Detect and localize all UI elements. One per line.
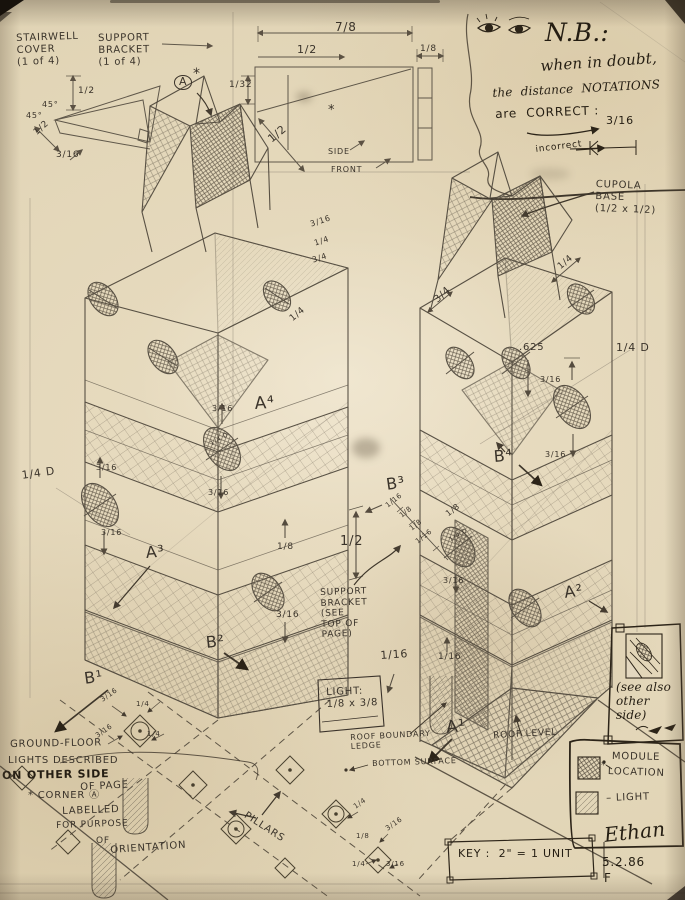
- see-also-note-line-0: (see also: [616, 680, 671, 694]
- support-bracket-note-line-1: BRACKET: [98, 44, 150, 57]
- dim-top-width: 7/8: [335, 20, 357, 34]
- corner-note-4: OF: [96, 836, 110, 847]
- dim-625: .625: [519, 342, 544, 354]
- legend-module-asterisk: *: [601, 760, 607, 772]
- stairwell-angle-2: 45°: [26, 111, 43, 120]
- light-callout-note: LIGHT:1/8 x 3/8: [326, 685, 378, 710]
- dim-pillar-r-quarter-2: 1/4: [352, 860, 366, 868]
- dim-quarter-d-in-left-ellipse: 1/4 D: [209, 431, 230, 447]
- dim-b3-116b: 1/16: [414, 527, 434, 545]
- nb-line3: are CORRECT :: [495, 103, 599, 121]
- label-b1: B¹: [83, 667, 104, 688]
- mark-asterisk-side: *: [328, 103, 335, 118]
- dim-b3-18b: 1/8: [408, 518, 424, 533]
- dim-a4-316-low: 3/16: [208, 488, 229, 497]
- dim-ellipse-316-low: 3/16: [443, 576, 464, 585]
- signature-initial: F: [604, 871, 612, 885]
- bottom-surface-note: BOTTOM SURFACE: [372, 756, 457, 768]
- support-bracket-note-line-0: SUPPORT: [98, 32, 150, 45]
- light-callout-note-line-1: 1/8 x 3/8: [326, 697, 378, 711]
- see-also-note-line-2: side): [616, 708, 671, 722]
- dim-quarter-d-left: 1/4 D: [21, 465, 56, 483]
- label-b4: B⁴: [493, 446, 514, 466]
- dim-stairwell-lip: 3/16: [56, 150, 79, 161]
- roof-level-note: ROOF LEVEL: [493, 728, 557, 742]
- dim-l-ellipse-316-low: 3/16: [101, 528, 122, 537]
- support-bracket-note: SUPPORTBRACKET(1 of 4): [98, 32, 150, 68]
- corner-a-circled: A: [174, 75, 192, 90]
- dim-116-left: 1/16: [380, 648, 409, 663]
- dim-stairwell-height: 1/2: [78, 86, 95, 97]
- scanned-pencil-drawing-page: { "colors": { "paper": "#e6dabf", "penci…: [0, 0, 685, 900]
- corner-note-1: * CORNER Ⓐ: [28, 790, 100, 802]
- dim-116-right: 1/16: [438, 652, 461, 663]
- stairwell-cover-note-line-0: STAIRWELL: [16, 31, 79, 45]
- see-also-note: (see alsootherside): [616, 680, 671, 722]
- dim-right-col-34: 3/4: [432, 285, 454, 306]
- dim-stairwell-width: 1/2: [32, 119, 52, 138]
- nb-line1: when in doubt,: [540, 50, 657, 76]
- page-edge-shadow: [110, 0, 440, 3]
- corner-a-asterisk: *: [193, 66, 201, 83]
- front-label: FRONT: [331, 165, 362, 174]
- nb-heading: N.B.:: [545, 18, 609, 48]
- nb-incorrect: incorrect: [535, 139, 583, 155]
- dim-quarter-d-margin: 1/4 D: [616, 342, 650, 355]
- dim-rt-316-lower: 3/16: [545, 450, 566, 459]
- page-corner-crease: [665, 0, 685, 24]
- page-corner-crease: [667, 886, 685, 900]
- stairwell-cover-note: STAIRWELLCOVER(1 of 4): [16, 31, 80, 69]
- dim-left-col-34: 3/4: [311, 251, 328, 265]
- label-a3: A³: [145, 542, 166, 562]
- legend-module-label-2: LOCATION: [608, 766, 665, 780]
- ground-floor-note-2: LIGHTS DESCRIBED: [8, 755, 118, 767]
- side-label: SIDE: [328, 147, 350, 156]
- signature-name: Ethan: [603, 818, 666, 848]
- support-bracket-see-note: SUPPORTBRACKET(SEETOP OFPAGE): [320, 586, 369, 641]
- legend-light-label: – LIGHT: [606, 791, 650, 804]
- dim-top-eighth: 1/8: [420, 44, 437, 55]
- see-also-note-line-1: other: [616, 694, 671, 708]
- dim-top-half: 1/2: [297, 44, 317, 57]
- dim-pillar-l-quarter-top: 1/4: [136, 700, 150, 708]
- annotation-layer: STAIRWELLCOVER(1 of 4)SUPPORTBRACKET(1 o…: [0, 0, 685, 900]
- dim-316-mid: 3/16: [276, 610, 299, 621]
- nb-line2: the distance NOTATIONS: [492, 77, 660, 100]
- dim-a4-316-up: 3/16: [212, 404, 233, 413]
- cupola-base-note-line-2: (1/2 x 1/2): [595, 203, 656, 217]
- roof-boundary-note: ROOF BOUNDARYLEDGE: [350, 729, 431, 752]
- dim-top-diag-half: 1/2: [266, 123, 290, 146]
- dim-pillar-l-316-bottom: 3/16: [94, 722, 114, 740]
- page-corner-crease: [0, 12, 12, 22]
- key-note: KEY : 2" = 1 UNIT: [458, 848, 573, 861]
- dim-left-col-316: 3/16: [309, 213, 332, 229]
- support-bracket-see-note-line-4: PAGE): [321, 629, 368, 641]
- pillars-note: PILLARS: [242, 810, 287, 845]
- dim-top-132: 1/32: [229, 80, 252, 91]
- dim-l-ellipse-316-up: 3/16: [96, 463, 117, 472]
- corner-note-2: LABELLED: [62, 804, 120, 818]
- stairwell-angle-1: 45°: [42, 100, 59, 109]
- dim-half-center: 1/2: [340, 534, 363, 549]
- stairwell-cover-note-line-2: (1 of 4): [17, 54, 80, 68]
- ground-floor-note-1: GROUND-FLOOR: [10, 737, 102, 750]
- nb-correct-value: 3/16: [606, 115, 634, 128]
- dim-18-mid: 1/8: [277, 542, 294, 553]
- label-b2: B²: [205, 632, 226, 653]
- dim-pillar-r-316-1: 3/16: [384, 815, 404, 833]
- dim-pillar-r-316-2: 3/16: [386, 860, 405, 868]
- dim-left-col-quarter: 1/4: [313, 234, 330, 248]
- corner-note-3: FOR PURPOSE: [56, 818, 129, 831]
- signature-date: 5.2.86: [602, 855, 645, 869]
- dim-left-face-quarter: 1/4: [288, 305, 308, 324]
- label-a2: A²: [563, 581, 584, 602]
- dim-pillar-r-eighth: 1/8: [356, 832, 370, 840]
- dim-cupola-quarter: 1/4: [556, 253, 576, 272]
- support-bracket-note-line-2: (1 of 4): [98, 56, 150, 69]
- dim-pillar-l-316-top: 3/16: [99, 686, 119, 704]
- dim-b3-18a: 1/8: [398, 505, 414, 520]
- corner-note-5: ORIENTATION: [110, 840, 187, 857]
- dim-b3-18c: 1/8: [444, 502, 462, 519]
- dim-rt-316-upper: 3/16: [540, 375, 561, 384]
- label-a4: A⁴: [254, 393, 275, 414]
- dim-pillar-r-quarter-1: 1/4: [352, 796, 368, 811]
- dim-quarter-d-in-right-ellipse: 1/4 D: [448, 527, 469, 543]
- cupola-base-note: CUPOLABASE(1/2 x 1/2): [595, 179, 657, 217]
- label-b3: B³: [385, 473, 406, 494]
- label-a1: A¹: [445, 716, 467, 738]
- legend-module-label-1: MODULE: [612, 751, 660, 764]
- dim-pillar-l-quarter-bottom: 1/4: [147, 730, 161, 738]
